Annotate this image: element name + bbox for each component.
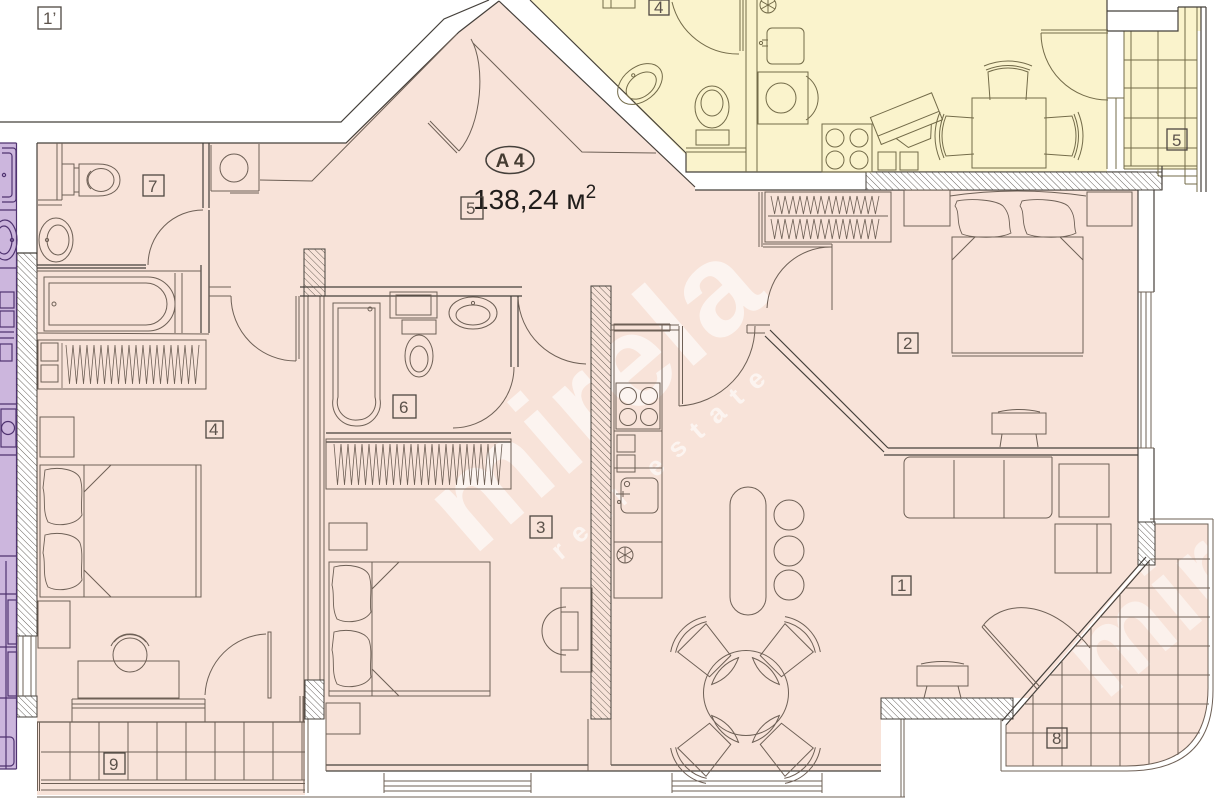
svg-text:138,24 м2: 138,24 м2: [473, 182, 596, 215]
svg-text:4: 4: [654, 0, 663, 17]
svg-text:5: 5: [466, 199, 475, 218]
svg-text:1: 1: [897, 576, 906, 595]
svg-text:7: 7: [148, 177, 157, 196]
svg-text:2: 2: [903, 334, 912, 353]
svg-text:1’: 1’: [43, 9, 56, 28]
svg-text:3: 3: [536, 518, 545, 537]
svg-text:5: 5: [1172, 131, 1181, 150]
svg-text:8: 8: [1052, 729, 1061, 748]
svg-text:6: 6: [399, 398, 408, 417]
svg-text:4: 4: [209, 420, 218, 439]
svg-text:9: 9: [109, 755, 118, 774]
svg-text:A 4: A 4: [496, 151, 525, 172]
